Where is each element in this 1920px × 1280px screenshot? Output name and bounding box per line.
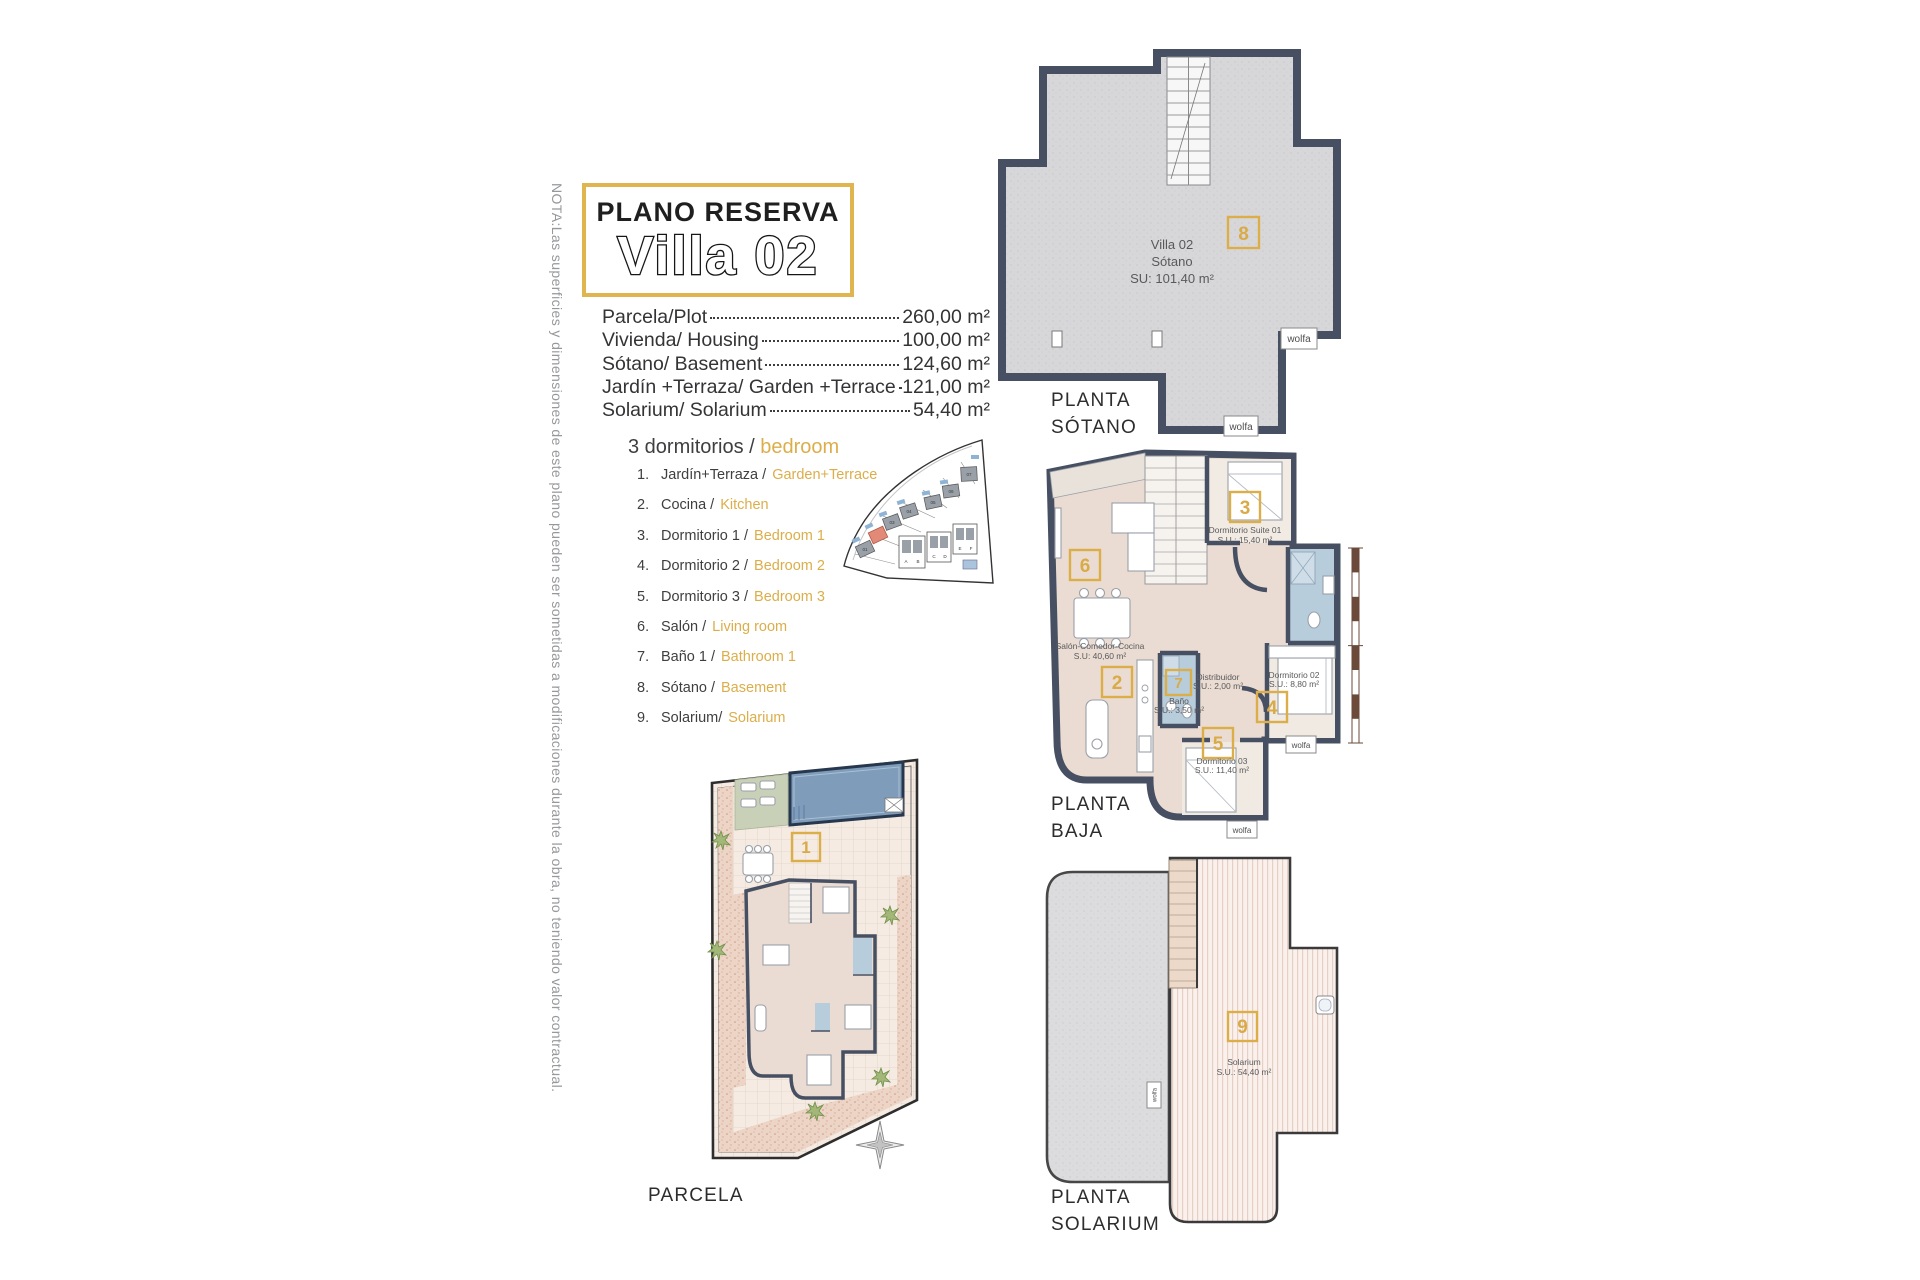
- wolfa-logo: wolfa: [1147, 1082, 1161, 1108]
- legend-item-num: 5.: [637, 589, 661, 605]
- lower-roof: [1047, 872, 1169, 1182]
- caption-planta-solarium: PLANTA SOLARIUM: [1051, 1185, 1160, 1238]
- room-name: Villa 02: [1151, 237, 1193, 252]
- room-name: Salón-Comedor-Cocina: [1056, 641, 1145, 651]
- sun-lounger: [741, 799, 756, 807]
- wolfa-logo: wolfa: [1227, 821, 1257, 838]
- badge-4: 4: [1267, 698, 1278, 719]
- room-area: S.U.: 15,40 m²: [1218, 535, 1273, 545]
- badge-3: 3: [1240, 498, 1251, 519]
- measurement-label: Solarium/ Solarium: [602, 399, 767, 422]
- compass-rose: [856, 1121, 904, 1169]
- legend-item-num: 3.: [637, 528, 661, 544]
- legend-item: 9.Solarium/Solarium: [637, 710, 877, 740]
- legend-item-en: Bathroom 1: [721, 649, 796, 665]
- disclaimer-note: NOTA:Las superficies y dimensiones de es…: [549, 183, 565, 1078]
- wolfa-logo: wolfa: [1281, 328, 1317, 349]
- wolfa-text: wolfa: [1232, 826, 1252, 835]
- island-sink: [1092, 739, 1102, 749]
- plan-sheet: NOTA:Las superficies y dimensiones de es…: [0, 0, 1920, 1280]
- mini-island: [755, 1005, 766, 1031]
- lawn-area: [735, 774, 788, 830]
- mini-bath: [853, 938, 872, 974]
- room-area: S.U.: 11,40 m²: [1195, 765, 1249, 775]
- legend-item-en: Basement: [721, 680, 786, 696]
- legend-item-es: Solarium/: [661, 710, 722, 726]
- legend-item-num: 8.: [637, 680, 661, 696]
- chair: [1096, 589, 1105, 598]
- legend-item-num: 1.: [637, 467, 661, 483]
- mini-bed: [823, 887, 849, 913]
- chair: [1112, 589, 1121, 598]
- legend-item-es: Dormitorio 1 /: [661, 528, 748, 544]
- measurement-row: Sótano/ Basement124,60 m²: [602, 353, 990, 376]
- pillar: [1052, 331, 1062, 347]
- site-location-map: 01 03 04 05 06 07 A B C D E F: [835, 432, 1005, 592]
- plot-label: 07: [966, 472, 972, 477]
- legend-item-en: Kitchen: [720, 497, 768, 513]
- legend-item: 6.Salón /Living room: [637, 619, 877, 649]
- plan-parcela: 1: [685, 755, 935, 1200]
- plot-label: 03: [889, 520, 895, 525]
- mini-bath: [815, 1003, 830, 1031]
- badge-1: 1: [801, 838, 810, 857]
- dotted-leader: [770, 410, 910, 412]
- wolfa-text: wolfa: [1286, 334, 1311, 345]
- dining-table: [1074, 598, 1130, 638]
- sun-lounger: [760, 781, 775, 789]
- badge-7: 7: [1174, 675, 1182, 692]
- staircase: [1167, 57, 1210, 185]
- townhouse-label: E: [958, 546, 961, 551]
- townhouse-label: B: [916, 559, 919, 564]
- legend-item-en: Bedroom 3: [754, 589, 825, 605]
- legend-item-num: 2.: [637, 497, 661, 513]
- legend-item-es: Cocina /: [661, 497, 714, 513]
- legend-item-es: Sótano /: [661, 680, 715, 696]
- legend-item-es: Jardín+Terraza /: [661, 467, 766, 483]
- room-name: Sótano: [1151, 254, 1192, 269]
- measurement-value: 124,60 m²: [902, 353, 990, 376]
- legend-item: 8.Sótano /Basement: [637, 680, 877, 710]
- legend-item-en: Solarium: [728, 710, 785, 726]
- room-area: S.U.: 8,80 m²: [1269, 679, 1319, 689]
- title-main: Villa 02: [617, 228, 818, 286]
- wolfa-text: wolfa: [1228, 422, 1253, 433]
- title-main-wrap: Villa 02: [587, 228, 849, 288]
- tv-unit: [1055, 508, 1061, 558]
- wardrobe: [1269, 646, 1335, 658]
- wolfa-text: wolfa: [1291, 741, 1311, 750]
- sofa: [1128, 533, 1154, 571]
- badge-6: 6: [1080, 556, 1091, 577]
- title-subtitle: PLANO RESERVA: [586, 197, 850, 228]
- pillar: [1152, 331, 1162, 347]
- measurement-label: Jardín +Terraza/ Garden +Terrace: [602, 376, 896, 399]
- room-area: S.U.: 54,40 m²: [1217, 1067, 1272, 1077]
- plan-sotano: Villa 02 Sótano SU: 101,40 m² 8 wolfa wo…: [995, 45, 1345, 437]
- legend-item-en: Bedroom 2: [754, 558, 825, 574]
- room-name: Solarium: [1227, 1057, 1261, 1067]
- legend-item-num: 7.: [637, 649, 661, 665]
- measurement-row: Parcela/Plot260,00 m²: [602, 306, 990, 329]
- dotted-leader: [710, 317, 899, 319]
- measurement-value: 121,00 m²: [902, 376, 990, 399]
- legend-header-es: 3 dormitorios /: [628, 436, 755, 458]
- room-area: S.U.: 2,00 m²: [1193, 681, 1243, 691]
- outdoor-dining: [743, 846, 773, 883]
- wolfa-logo: wolfa: [1286, 736, 1316, 753]
- measurement-value: 100,00 m²: [902, 329, 990, 352]
- legend-item-es: Dormitorio 3 /: [661, 589, 748, 605]
- legend-header-en: bedroom: [760, 436, 839, 458]
- townhouse-label: F: [970, 546, 973, 551]
- measurement-label: Parcela/Plot: [602, 306, 707, 329]
- measurement-value: 54,40 m²: [913, 399, 990, 422]
- toilet: [1308, 612, 1320, 628]
- room-area: S.U.: 3,50 m²: [1154, 705, 1204, 715]
- badge-8: 8: [1238, 224, 1249, 245]
- badge-5: 5: [1213, 734, 1224, 755]
- plot-label: 06: [948, 489, 954, 494]
- caption-planta-sotano: PLANTA SÓTANO: [1051, 388, 1137, 441]
- badge-9: 9: [1237, 1017, 1248, 1038]
- legend-item: 7.Baño 1 /Bathroom 1: [637, 649, 877, 679]
- wolfa-logo: wolfa: [1224, 416, 1258, 436]
- legend-item-es: Salón /: [661, 619, 706, 635]
- plan-baja: 6 3 2 7 4 5 Salón-Comedor-Cocina S.U: 40…: [1030, 448, 1375, 846]
- plan-solarium: 9 Solarium S.U.: 54,40 m² wolfa: [1040, 852, 1350, 1240]
- legend-item-es: Dormitorio 2 /: [661, 558, 748, 574]
- legend-item-num: 4.: [637, 558, 661, 574]
- legend-item-es: Baño 1 /: [661, 649, 715, 665]
- badge-2: 2: [1112, 673, 1123, 694]
- shower: [1291, 552, 1315, 584]
- title-box: PLANO RESERVA Villa 02: [582, 183, 854, 297]
- ramp-icon: [885, 798, 903, 812]
- scale-bar: [1348, 548, 1363, 743]
- mini-bed: [845, 1005, 871, 1029]
- mini-bed: [807, 1055, 831, 1085]
- legend-item-en: Living room: [712, 619, 787, 635]
- caption-planta-baja: PLANTA BAJA: [1051, 792, 1131, 845]
- mini-stairs: [789, 883, 811, 923]
- sofa: [1112, 503, 1154, 533]
- measurement-row: Solarium/ Solarium54,40 m²: [602, 399, 990, 422]
- caption-parcela: PARCELA: [648, 1183, 744, 1210]
- dotted-leader: [762, 340, 899, 342]
- chair: [1080, 589, 1089, 598]
- measurement-label: Vivienda/ Housing: [602, 329, 759, 352]
- staircase: [1169, 858, 1197, 988]
- plot-label: 01: [862, 547, 868, 552]
- room-area: S.U: 40,60 m²: [1074, 651, 1127, 661]
- measurement-label: Sótano/ Basement: [602, 353, 762, 376]
- communal-pool: [963, 560, 977, 569]
- legend-item-num: 6.: [637, 619, 661, 635]
- jacuzzi: [1316, 996, 1334, 1014]
- plot-label: 04: [906, 509, 912, 514]
- dotted-leader: [765, 364, 899, 366]
- room-name: Dormitorio Suite 01: [1209, 525, 1282, 535]
- kitchen-counter: [1137, 660, 1153, 772]
- sun-lounger: [760, 797, 775, 805]
- legend-header: 3 dormitorios / bedroom: [628, 436, 839, 459]
- sink: [1323, 576, 1334, 594]
- legend-item-en: Bedroom 1: [754, 528, 825, 544]
- legend-item: 5.Dormitorio 3 /Bedroom 3: [637, 589, 877, 619]
- measurement-value: 260,00 m²: [902, 306, 990, 329]
- sun-lounger: [741, 783, 756, 791]
- legend-item-num: 9.: [637, 710, 661, 726]
- kitchen-sink: [1139, 736, 1151, 752]
- plot-label: 05: [930, 500, 936, 505]
- measurement-row: Vivienda/ Housing100,00 m²: [602, 329, 990, 352]
- measurements-list: Parcela/Plot260,00 m² Vivienda/ Housing1…: [602, 306, 990, 422]
- mini-dining: [763, 945, 789, 965]
- wolfa-text: wolfa: [1153, 1087, 1159, 1103]
- measurement-row: Jardín +Terraza/ Garden +Terrace121,00 m…: [602, 376, 990, 399]
- room-area: SU: 101,40 m²: [1130, 271, 1214, 286]
- swimming-pool: [790, 762, 903, 825]
